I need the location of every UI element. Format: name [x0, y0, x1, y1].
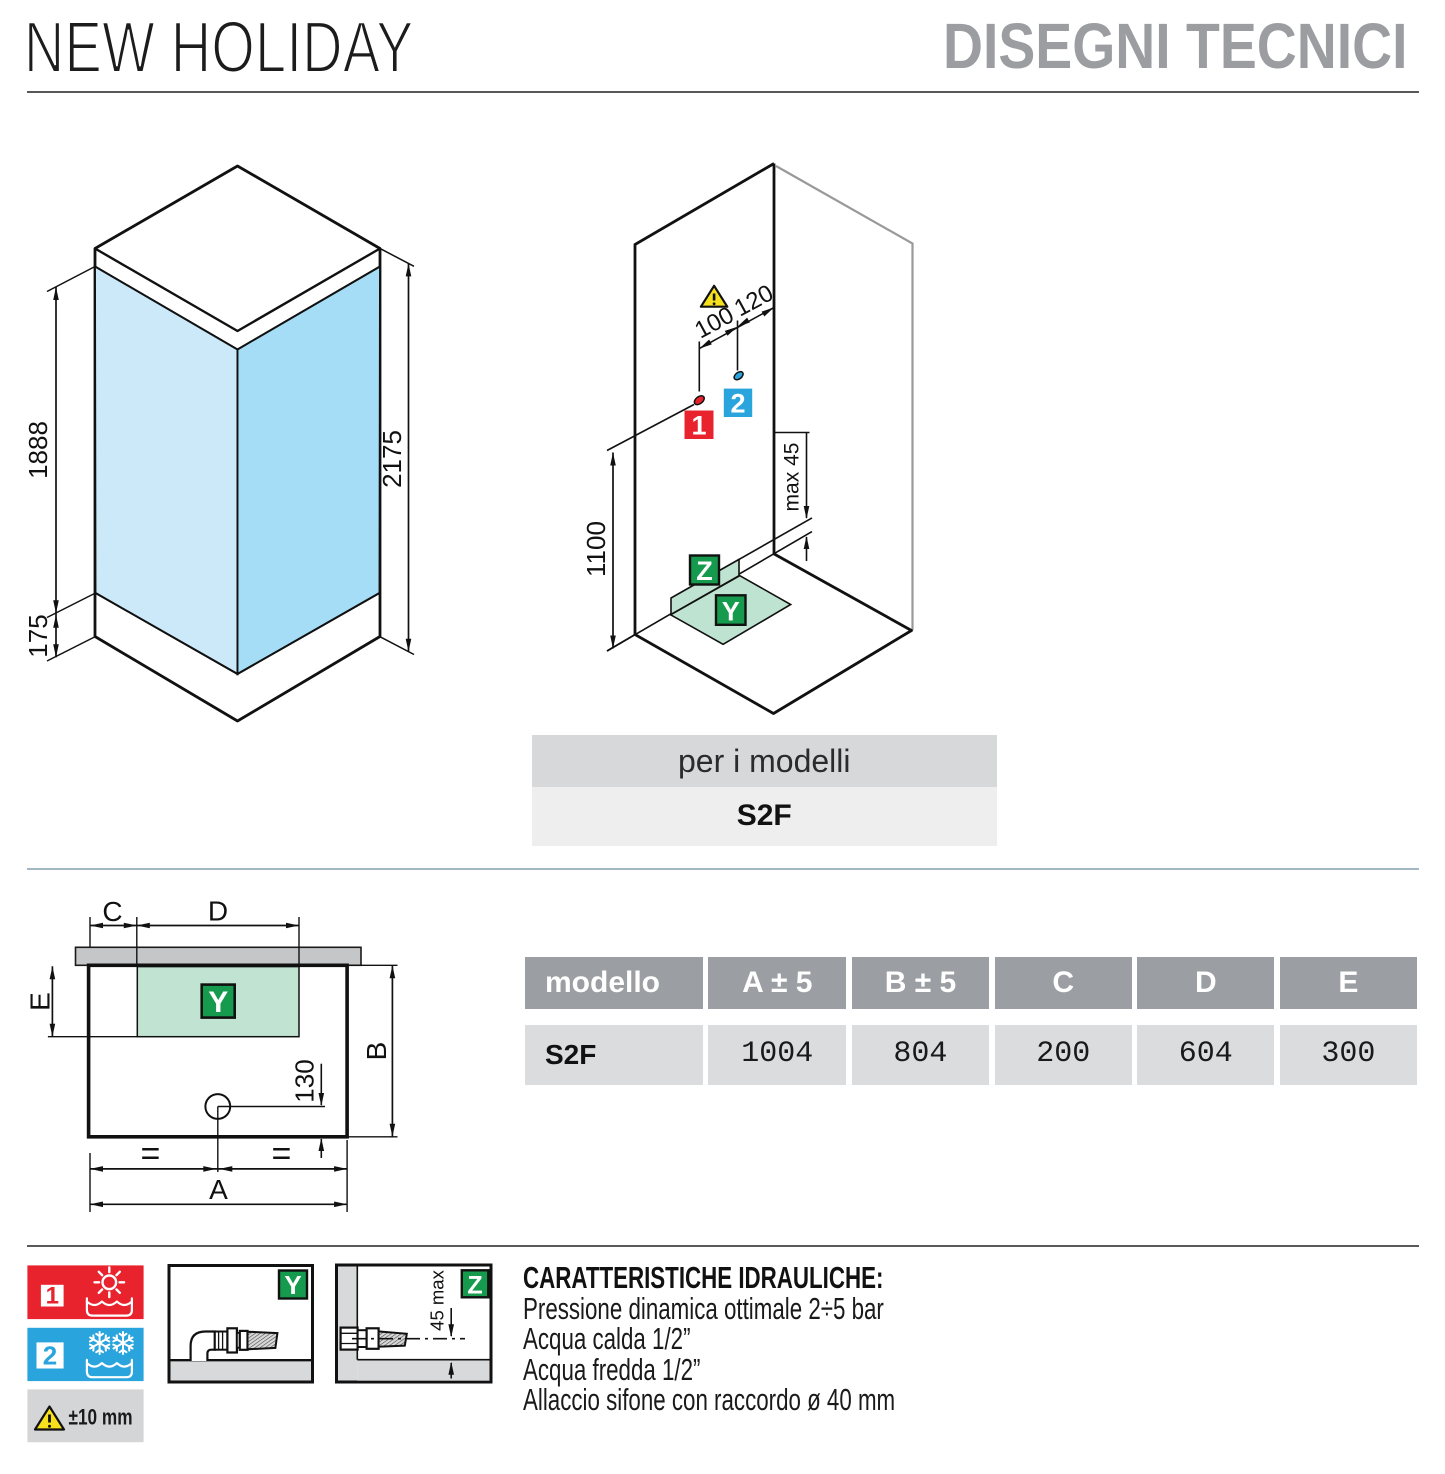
svg-text:120: 120 [730, 279, 778, 322]
svg-text:=: = [140, 1135, 160, 1173]
svg-text:Y: Y [284, 1270, 301, 1300]
svg-text:100: 100 [690, 301, 738, 344]
svg-text:Y: Y [722, 596, 740, 626]
svg-text:130: 130 [289, 1059, 319, 1102]
svg-text:45 max: 45 max [426, 1269, 447, 1330]
svg-text:max 45: max 45 [781, 443, 804, 512]
svg-text:±10 mm: ±10 mm [69, 1405, 133, 1430]
svg-text:1888: 1888 [23, 421, 53, 479]
svg-text:175: 175 [23, 614, 53, 657]
svg-text:1: 1 [46, 1283, 59, 1310]
svg-text:A: A [209, 1174, 228, 1205]
svg-text:E: E [24, 992, 55, 1011]
svg-text:D: D [208, 896, 228, 927]
svg-text:Z: Z [696, 556, 713, 586]
svg-text:Z: Z [467, 1271, 482, 1299]
svg-text:=: = [271, 1135, 291, 1173]
svg-text:2: 2 [730, 389, 745, 419]
svg-text:1100: 1100 [581, 521, 611, 577]
svg-text:C: C [102, 896, 122, 927]
svg-text:2175: 2175 [377, 430, 407, 488]
svg-text:B: B [361, 1042, 392, 1061]
svg-text:1: 1 [691, 411, 706, 441]
svg-text:2: 2 [43, 1341, 57, 1371]
svg-text:Y: Y [208, 986, 228, 1019]
